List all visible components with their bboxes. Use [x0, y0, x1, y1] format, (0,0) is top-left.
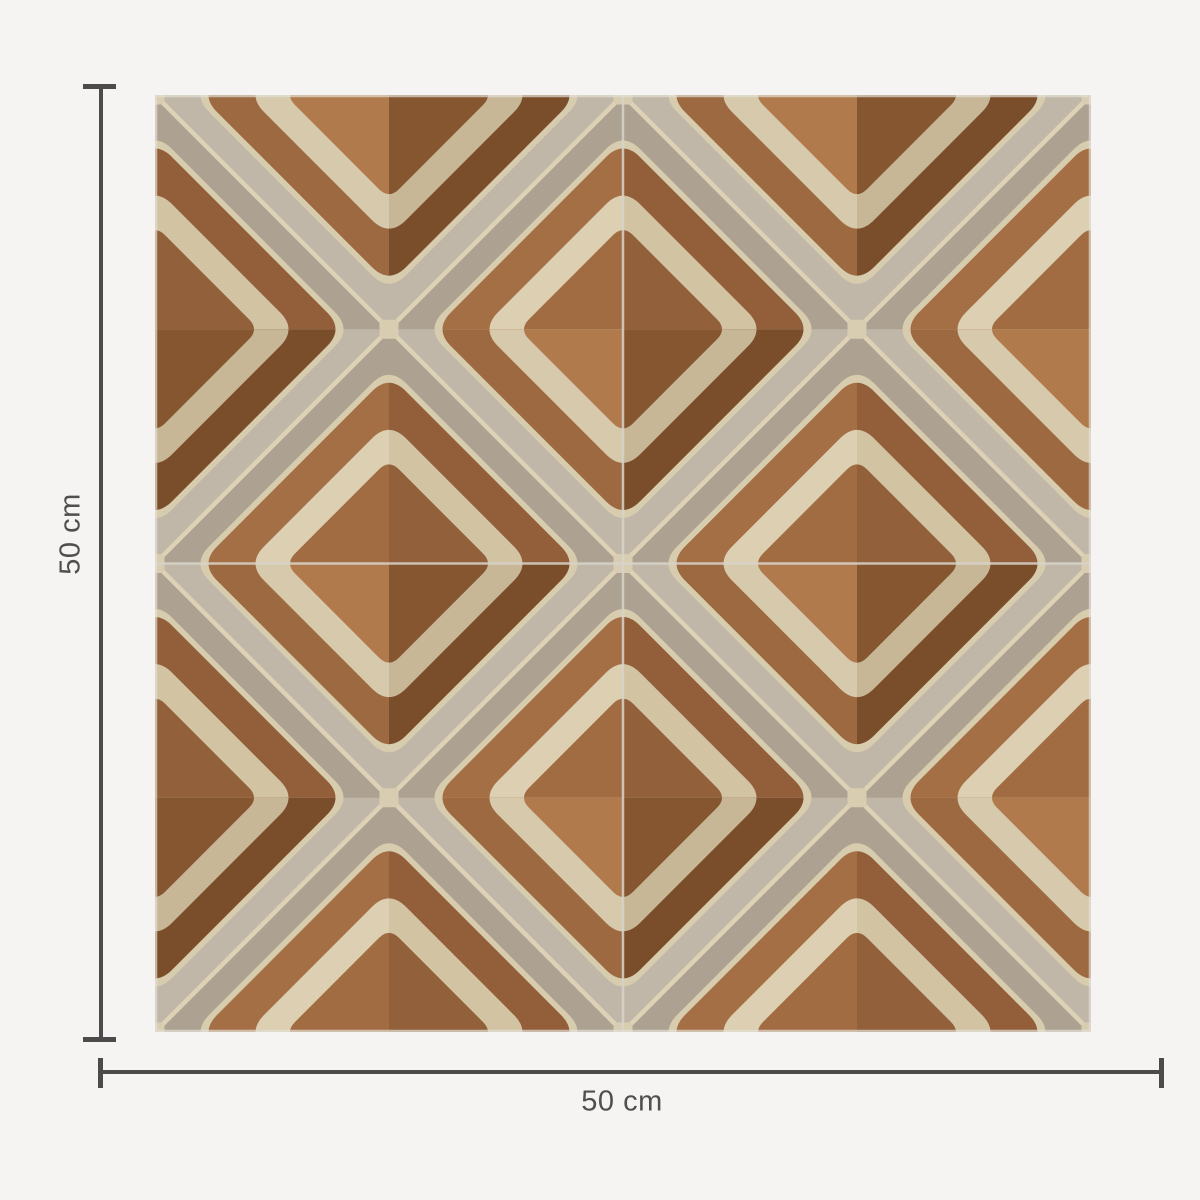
height-dimension-label: 50 cm — [55, 493, 88, 574]
tile-pattern-image — [155, 95, 1091, 1032]
width-dim-cap-right — [1159, 1058, 1164, 1088]
tile-image-frame — [155, 95, 1091, 1032]
width-dimension-label: 50 cm — [581, 1086, 662, 1119]
height-dim-line — [99, 85, 103, 1041]
width-dim-line — [100, 1070, 1163, 1074]
product-dimension-diagram: 50 cm 50 cm — [0, 0, 1200, 1200]
height-dim-cap-bottom — [83, 1037, 116, 1042]
